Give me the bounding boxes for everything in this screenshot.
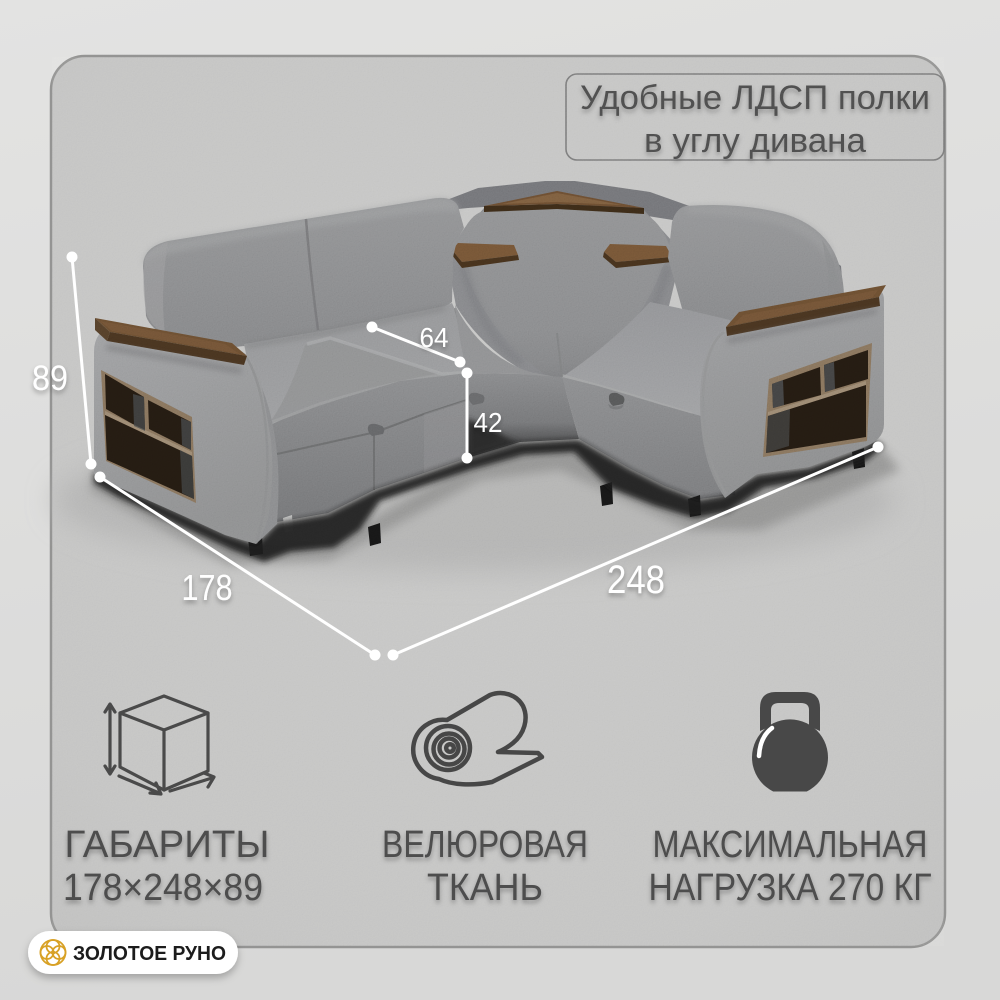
- svg-text:НАГРУЗКА 270 КГ: НАГРУЗКА 270 КГ: [649, 867, 932, 909]
- svg-text:МАКСИМАЛЬНАЯ: МАКСИМАЛЬНАЯ: [653, 824, 928, 866]
- svg-text:64: 64: [420, 322, 449, 353]
- svg-text:ТКАНЬ: ТКАНЬ: [427, 867, 543, 909]
- svg-text:ГАБАРИТЫ: ГАБАРИТЫ: [65, 824, 270, 866]
- svg-text:ЗОЛОТОЕ РУНО: ЗОЛОТОЕ РУНО: [73, 943, 226, 965]
- svg-text:42: 42: [474, 407, 503, 438]
- svg-text:89: 89: [32, 359, 68, 398]
- svg-text:178: 178: [182, 567, 233, 608]
- svg-text:248: 248: [607, 558, 665, 602]
- svg-text:ВЕЛЮРОВАЯ: ВЕЛЮРОВАЯ: [382, 824, 588, 866]
- svg-text:178×248×89: 178×248×89: [63, 867, 263, 909]
